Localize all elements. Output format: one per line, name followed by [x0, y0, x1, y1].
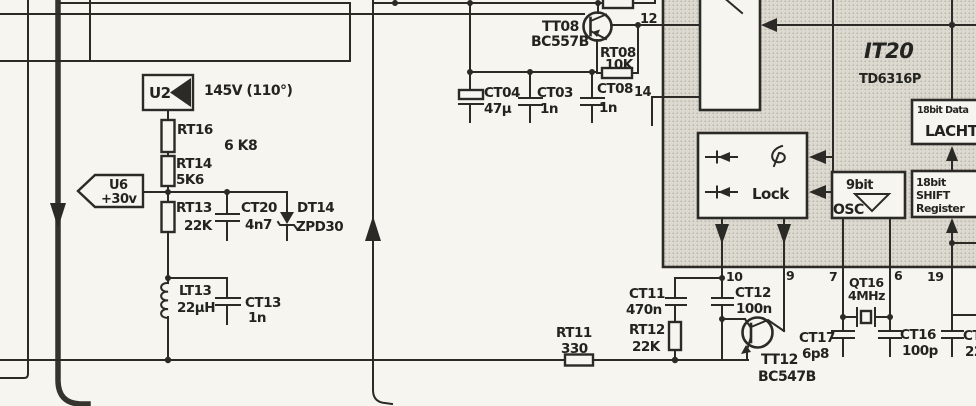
ct08-value: 1n [599, 100, 617, 116]
shift-label: SHIFT [916, 189, 951, 202]
rt11-value: 330 [561, 341, 588, 357]
tt08-value: BC557B [531, 34, 589, 50]
ct16-value: 100p [902, 343, 939, 359]
rt13-ref: RT13 [176, 200, 212, 216]
resistor-rt13 [162, 192, 175, 278]
resistor-rt16 [162, 120, 175, 156]
ct12-value: 100n [736, 301, 772, 317]
u6-value: +30v [101, 192, 137, 207]
ic-ref: IT20 [864, 39, 913, 63]
tt12-value: BC547B [758, 369, 816, 385]
tt08-ref: TT08 [542, 19, 579, 35]
ct12-ref: CT12 [735, 285, 771, 301]
ct17-ref: CT17 [799, 330, 835, 346]
schematic-drawing: U2 145V (110°) U6 +30v RT16 6 K8 RT14 5K… [0, 0, 976, 406]
ct08-ref: CT08 [597, 81, 633, 97]
latch-bits-label: 18bit Data [917, 105, 968, 116]
pin19-label: 19 [927, 269, 943, 284]
pin7-label: 7 [829, 269, 837, 284]
shift-bits-label: 18bit [916, 176, 946, 189]
ct-clipped-ref: CT1 [963, 328, 976, 344]
ic-lock-block [698, 133, 807, 218]
pin12-label: 12 [640, 12, 657, 27]
ct20-value: 4n7 [245, 217, 272, 233]
u6-tag-label: U6 [109, 178, 128, 193]
capacitor-ct-clipped [942, 315, 963, 356]
u2-tag-label: U2 [149, 84, 171, 102]
dt14-value: ZPD30 [296, 219, 343, 235]
pin14-wire [652, 97, 663, 125]
osc-label: OSC [833, 202, 864, 218]
rt14-ref: RT14 [176, 156, 212, 172]
zener-dt14 [278, 192, 297, 240]
tt12-ref: TT12 [761, 352, 798, 368]
latch-label: LACHT [925, 122, 976, 140]
decoupling-caps [459, 3, 604, 122]
resistor-top-symbol [603, 0, 633, 8]
pin9-label: 9 [786, 268, 794, 283]
ic-divider-block [700, 0, 760, 110]
ct16-ref: CT16 [900, 327, 936, 343]
ct-clipped-value: 22 [965, 344, 976, 360]
ct04-value: 47µ [484, 101, 512, 117]
rt13-value: 22K [184, 218, 213, 234]
osc-bits-label: 9bit [846, 178, 873, 193]
pin6-label: 6 [894, 268, 903, 283]
rt11-ref: RT11 [556, 325, 592, 341]
lt13-value: 22µH [177, 300, 215, 316]
ct20-ref: CT20 [241, 200, 277, 216]
pin19-wire [952, 267, 976, 315]
ct03-value: 1n [540, 101, 558, 117]
pin14-label: 14 [634, 85, 652, 100]
shift-register-label: Register [916, 202, 965, 215]
ic-part-number: TD6316P [859, 72, 921, 87]
ct11-ref: CT11 [629, 286, 665, 302]
capacitor-ct04 [459, 72, 483, 122]
ct13-value: 1n [248, 310, 266, 326]
rt14-value: 5K6 [176, 172, 204, 188]
rt12-ref: RT12 [629, 322, 665, 338]
resistor-rt12-symbol [669, 322, 681, 350]
schematic-page: U2 145V (110°) U6 +30v RT16 6 K8 RT14 5K… [0, 0, 976, 406]
rt12-value: 22K [632, 339, 661, 355]
arrow-up-icon [365, 216, 381, 241]
qt16-value: 4MHz [848, 288, 885, 303]
rt08-value: 10K [605, 57, 634, 73]
lock-label: Lock [752, 185, 790, 203]
ct11-value: 470n [626, 302, 662, 318]
rt16-ref: RT16 [177, 122, 213, 138]
ct17-value: 6p8 [802, 346, 829, 362]
rt16-value: 6 K8 [224, 138, 257, 154]
u2-note: 145V (110°) [204, 83, 293, 99]
capacitor-ct20 [216, 192, 239, 240]
pin10-label: 10 [726, 269, 743, 284]
ct13-ref: CT13 [245, 295, 281, 311]
resistor-rt14 [162, 156, 175, 192]
lt13-ref: LT13 [179, 283, 211, 299]
crystal-qt16 [843, 308, 890, 326]
arrow-down-icon [50, 203, 66, 228]
capacitor-ct11-rt12-branch [666, 267, 722, 360]
dt14-ref: DT14 [297, 200, 334, 216]
ct04-ref: CT04 [484, 85, 520, 101]
ct03-ref: CT03 [537, 85, 573, 101]
inductor-lt13 [161, 278, 168, 360]
